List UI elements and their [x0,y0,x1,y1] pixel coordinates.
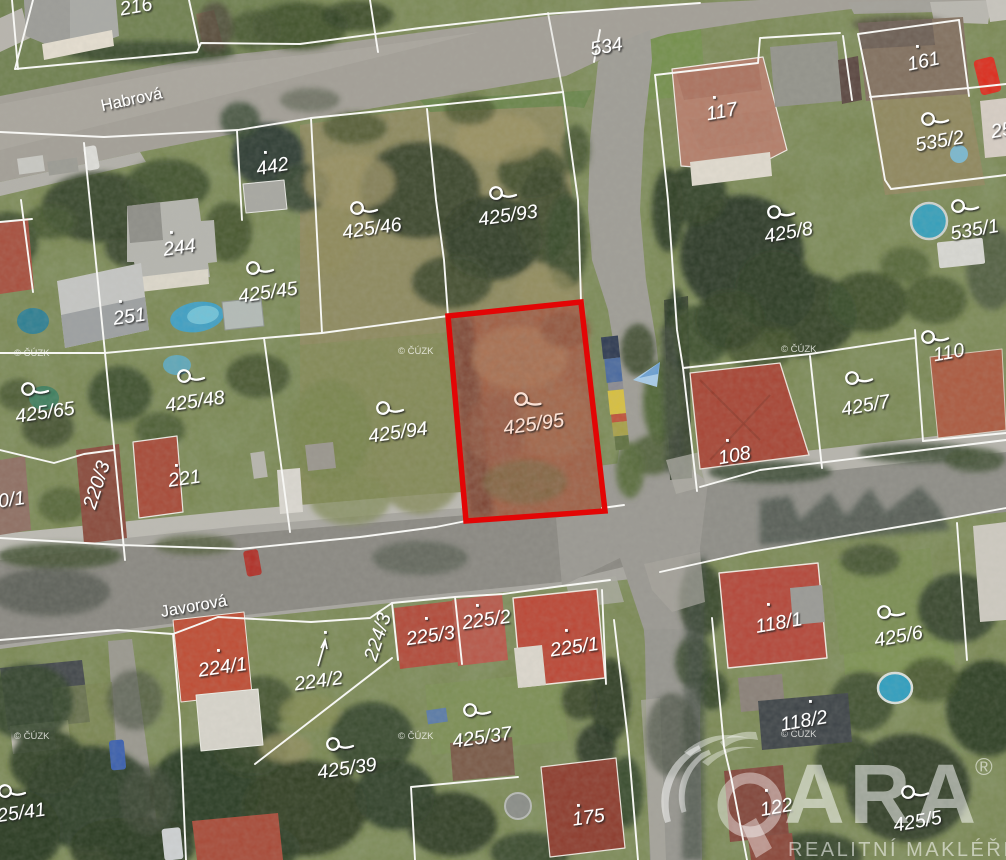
svg-text:251: 251 [111,304,147,330]
svg-text:© ČÚZK: © ČÚZK [398,731,434,742]
svg-text:© ČÚZK: © ČÚZK [14,731,50,742]
svg-text:© ČÚZK: © ČÚZK [781,344,817,355]
svg-text:REALITNÍ MAKLÉŘI: REALITNÍ MAKLÉŘI [788,838,1006,860]
svg-text:244: 244 [161,234,197,260]
svg-text:®: ® [975,754,993,781]
svg-text:ARA: ARA [784,747,981,841]
svg-text:© ČÚZK: © ČÚZK [14,348,50,359]
svg-text:0/1: 0/1 [0,487,26,513]
svg-text:221: 221 [166,466,202,492]
svg-text:© ČÚZK: © ČÚZK [398,346,434,357]
svg-text:175: 175 [571,804,606,830]
